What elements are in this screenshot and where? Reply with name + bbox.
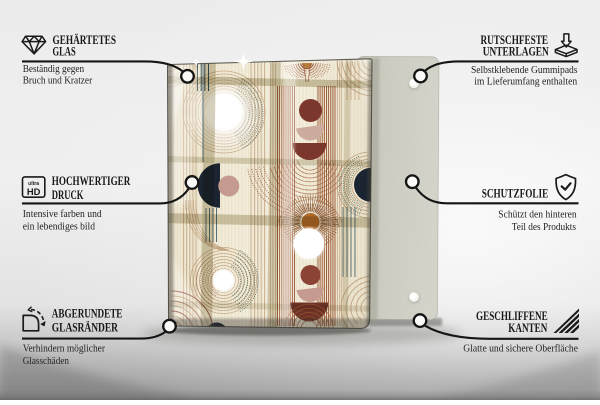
svg-text:im Lieferumfang enthalten: im Lieferumfang enthalten: [474, 76, 577, 87]
svg-text:Teil des Produkts: Teil des Produkts: [512, 222, 576, 233]
svg-text:Glasschäden: Glasschäden: [23, 356, 69, 367]
svg-text:HD: HD: [27, 186, 41, 197]
svg-text:Glatte und sichere Oberfläche: Glatte und sichere Oberfläche: [463, 344, 578, 355]
svg-text:Beständig gegen: Beständig gegen: [23, 64, 84, 75]
svg-text:HOCHWERTIGER: HOCHWERTIGER: [52, 174, 131, 188]
svg-text:GLASRÄNDER: GLASRÄNDER: [52, 320, 118, 334]
svg-text:DRUCK: DRUCK: [52, 188, 84, 202]
svg-text:GLAS: GLAS: [53, 45, 76, 59]
svg-text:KANTEN: KANTEN: [508, 321, 547, 335]
svg-text:Selbstklebende Gummipads: Selbstklebende Gummipads: [471, 65, 578, 76]
svg-text:SCHUTZFOLIE: SCHUTZFOLIE: [482, 187, 549, 201]
svg-text:Intensive farben und: Intensive farben und: [23, 209, 102, 220]
svg-text:UNTERLAGEN: UNTERLAGEN: [483, 45, 549, 59]
svg-text:Verhindern möglicher: Verhindern möglicher: [23, 344, 106, 355]
svg-text:ein lebendiges bild: ein lebendiges bild: [23, 222, 95, 233]
svg-text:ABGERUNDETE: ABGERUNDETE: [52, 307, 123, 321]
svg-text:Bruch und Kratzer: Bruch und Kratzer: [23, 76, 93, 87]
svg-text:Schützt den hinteren: Schützt den hinteren: [498, 210, 576, 221]
